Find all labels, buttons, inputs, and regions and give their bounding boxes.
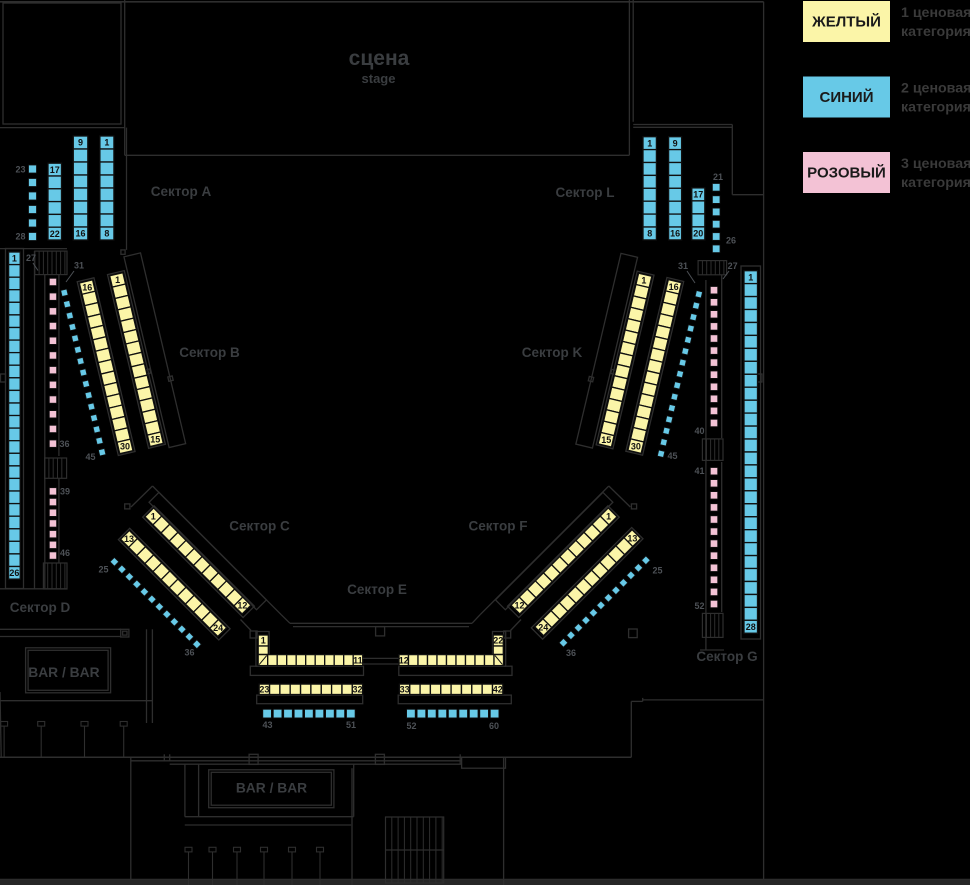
- svg-text:12: 12: [399, 655, 409, 665]
- svg-text:Сектор G: Сектор G: [696, 649, 757, 664]
- svg-text:45: 45: [85, 452, 95, 462]
- svg-text:46: 46: [60, 548, 70, 558]
- svg-text:BAR / BAR: BAR / BAR: [236, 781, 307, 796]
- svg-text:45: 45: [667, 451, 677, 461]
- svg-text:1 ценовая: 1 ценовая: [901, 5, 970, 21]
- svg-text:Сектор E: Сектор E: [347, 582, 407, 597]
- svg-text:31: 31: [678, 261, 688, 271]
- svg-text:42: 42: [493, 685, 503, 695]
- svg-text:52: 52: [694, 601, 704, 611]
- svg-text:15: 15: [150, 435, 160, 445]
- svg-text:сцена: сцена: [349, 47, 410, 70]
- svg-text:15: 15: [601, 435, 611, 445]
- svg-text:категория: категория: [901, 100, 970, 116]
- svg-text:12: 12: [514, 601, 524, 611]
- svg-text:28: 28: [746, 622, 756, 632]
- svg-text:1: 1: [151, 512, 156, 522]
- svg-text:ЖЕЛТЫЙ: ЖЕЛТЫЙ: [811, 13, 881, 31]
- svg-text:категория: категория: [901, 24, 970, 40]
- svg-text:52: 52: [406, 721, 416, 731]
- svg-text:Сектор D: Сектор D: [10, 600, 71, 615]
- svg-text:Сектор K: Сектор K: [522, 345, 583, 360]
- svg-text:36: 36: [566, 648, 576, 658]
- svg-text:11: 11: [353, 655, 363, 665]
- svg-text:Сектор L: Сектор L: [556, 185, 615, 200]
- svg-text:stage: stage: [362, 71, 396, 86]
- svg-text:30: 30: [120, 442, 130, 452]
- svg-text:12: 12: [237, 601, 247, 611]
- svg-text:17: 17: [50, 165, 60, 175]
- svg-text:1: 1: [748, 272, 753, 282]
- svg-text:1: 1: [12, 254, 17, 264]
- svg-text:2 ценовая: 2 ценовая: [901, 81, 970, 97]
- svg-text:13: 13: [124, 534, 134, 544]
- svg-text:43: 43: [262, 720, 272, 730]
- svg-text:8: 8: [104, 229, 109, 239]
- svg-text:23: 23: [15, 165, 25, 175]
- svg-text:1: 1: [104, 138, 109, 148]
- svg-text:25: 25: [652, 566, 662, 576]
- svg-text:1: 1: [115, 275, 120, 285]
- svg-text:60: 60: [489, 721, 499, 731]
- svg-text:31: 31: [74, 261, 84, 271]
- svg-text:21: 21: [713, 172, 723, 182]
- svg-text:1: 1: [261, 636, 266, 646]
- svg-text:26: 26: [726, 236, 736, 246]
- svg-text:41: 41: [694, 466, 704, 476]
- svg-text:28: 28: [15, 232, 25, 242]
- svg-text:25: 25: [98, 565, 108, 575]
- svg-text:36: 36: [59, 439, 69, 449]
- svg-text:РОЗОВЫЙ: РОЗОВЫЙ: [807, 164, 886, 182]
- svg-text:категория: категория: [901, 175, 970, 191]
- svg-text:17: 17: [693, 190, 703, 200]
- svg-text:24: 24: [213, 623, 223, 633]
- svg-text:27: 27: [728, 261, 738, 271]
- svg-text:22: 22: [50, 229, 60, 239]
- svg-text:16: 16: [82, 282, 92, 292]
- svg-text:9: 9: [78, 138, 83, 148]
- svg-text:27: 27: [26, 253, 36, 263]
- svg-text:9: 9: [673, 138, 678, 148]
- svg-text:8: 8: [647, 229, 652, 239]
- svg-text:16: 16: [670, 229, 680, 239]
- svg-text:30: 30: [631, 441, 641, 451]
- svg-text:16: 16: [75, 229, 85, 239]
- svg-text:3 ценовая: 3 ценовая: [901, 156, 970, 172]
- svg-text:33: 33: [400, 685, 410, 695]
- svg-text:36: 36: [184, 648, 194, 658]
- svg-text:32: 32: [352, 685, 362, 695]
- svg-text:1: 1: [641, 276, 646, 286]
- svg-text:СИНИЙ: СИНИЙ: [819, 88, 873, 106]
- svg-text:1: 1: [647, 138, 652, 148]
- svg-text:Сектор F: Сектор F: [469, 519, 528, 534]
- svg-text:39: 39: [60, 487, 70, 497]
- svg-text:16: 16: [669, 282, 679, 292]
- svg-text:22: 22: [493, 636, 503, 646]
- svg-text:1: 1: [606, 512, 611, 522]
- svg-text:23: 23: [259, 685, 269, 695]
- svg-text:13: 13: [627, 533, 637, 543]
- svg-text:Сектор A: Сектор A: [151, 184, 212, 199]
- svg-text:51: 51: [346, 720, 356, 730]
- svg-text:40: 40: [694, 426, 704, 436]
- svg-text:Сектор C: Сектор C: [229, 519, 290, 534]
- svg-text:26: 26: [9, 568, 19, 578]
- svg-text:24: 24: [538, 622, 548, 632]
- svg-text:Сектор B: Сектор B: [179, 345, 240, 360]
- svg-text:BAR / BAR: BAR / BAR: [28, 665, 99, 680]
- svg-text:20: 20: [693, 229, 703, 239]
